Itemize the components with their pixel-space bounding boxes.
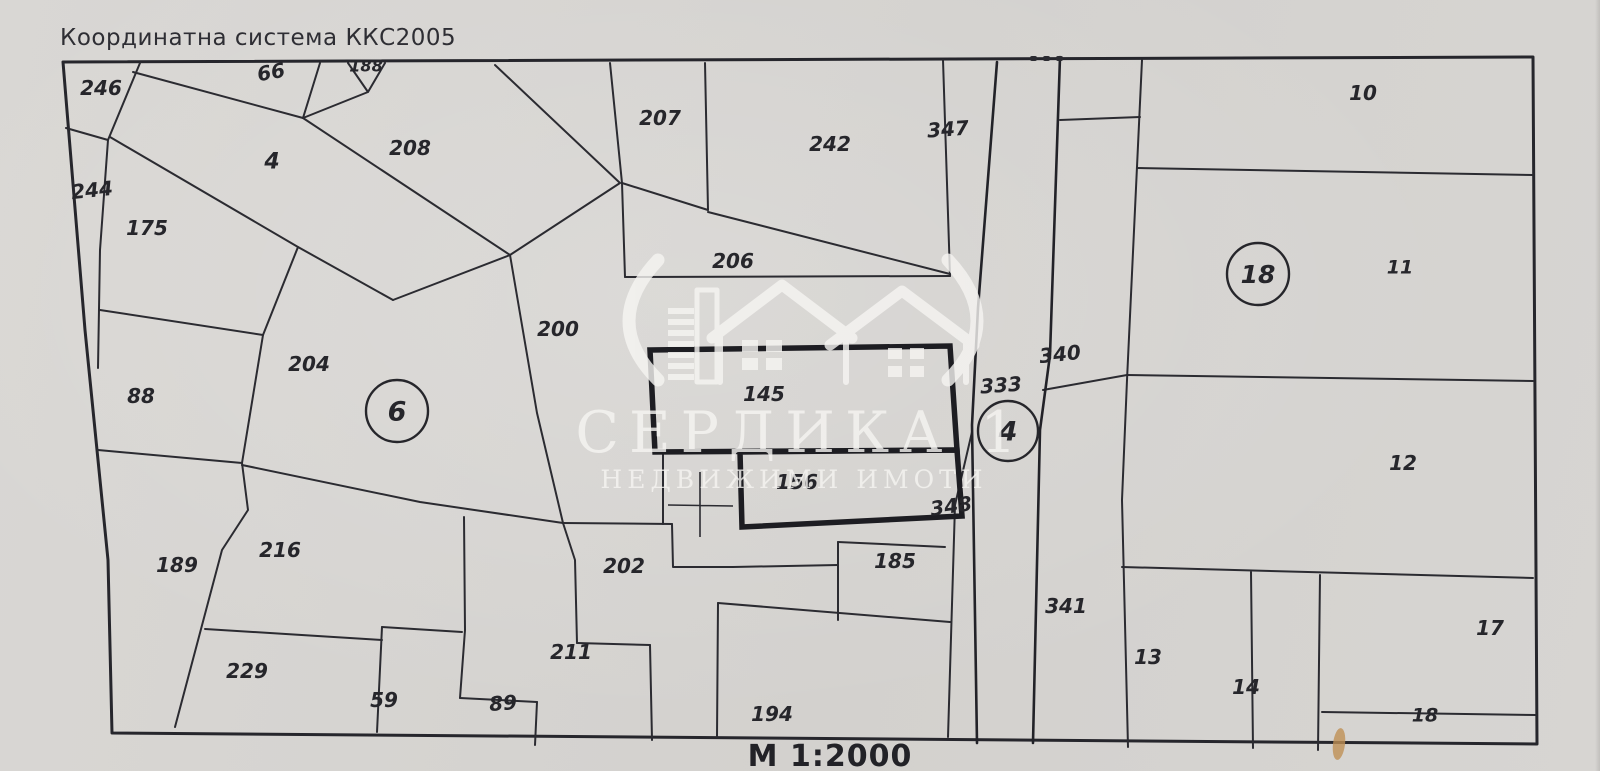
parcel-label-202: 202 bbox=[603, 554, 645, 578]
scanned-cadastral-page: Координатна система ККС2005 bbox=[0, 0, 1600, 771]
parcel-label-189: 189 bbox=[156, 553, 198, 577]
parcel-label-88: 88 bbox=[127, 384, 155, 408]
parcel-labels-layer: 2466618842082072423472441752062002048814… bbox=[70, 57, 1504, 727]
parcel-label-204: 204 bbox=[288, 352, 330, 376]
parcel-label-206: 206 bbox=[712, 249, 754, 273]
parcel-label-59: 59 bbox=[370, 688, 398, 712]
paper-stain bbox=[1331, 727, 1347, 760]
parcel-label-200: 200 bbox=[537, 317, 579, 341]
parcel-label-341: 341 bbox=[1045, 594, 1087, 618]
clipped-top-digits bbox=[1030, 56, 1063, 61]
parcel-label-244: 244 bbox=[70, 176, 114, 204]
watermark-logo bbox=[629, 260, 977, 382]
parcel-label-194: 194 bbox=[751, 702, 793, 726]
parcel-label-89: 89 bbox=[488, 690, 518, 716]
parcel-label-246: 246 bbox=[80, 76, 122, 100]
circled-parcel-18: 18 bbox=[1227, 243, 1289, 305]
parcel-label-188: 188 bbox=[349, 57, 382, 76]
parcel-label-340: 340 bbox=[1038, 340, 1082, 368]
parcel-label-10: 10 bbox=[1349, 81, 1377, 105]
watermark-house-left bbox=[712, 285, 852, 382]
parcel-label-208: 208 bbox=[389, 136, 431, 160]
parcel-label-207: 207 bbox=[639, 106, 681, 130]
parcel-label-175: 175 bbox=[126, 216, 168, 240]
circled-parcel-6: 6 bbox=[366, 380, 428, 442]
circled-parcel-number: 18 bbox=[1241, 260, 1276, 289]
parcel-label-348: 348 bbox=[929, 491, 974, 521]
parcel-label-216: 216 bbox=[259, 538, 301, 562]
parcel-label-11: 11 bbox=[1387, 257, 1413, 279]
parcel-label-4: 4 bbox=[263, 150, 279, 175]
watermark-striped-tower bbox=[668, 308, 694, 380]
watermark-tagline-text: НЕДВИЖИМИ ИМОТИ bbox=[600, 465, 987, 494]
cadastral-map: 2466618842082072423472441752062002048814… bbox=[0, 0, 1600, 771]
parcel-label-347: 347 bbox=[926, 116, 969, 143]
circled-parcel-number: 6 bbox=[388, 397, 407, 428]
parcel-label-14: 14 bbox=[1232, 675, 1260, 699]
parcel-label-185: 185 bbox=[874, 549, 916, 573]
parcel-label-13: 13 bbox=[1134, 645, 1162, 669]
watermark-brand-text: СЕРДИКА 1 bbox=[575, 400, 1026, 466]
scan-artifacts bbox=[1030, 56, 1347, 761]
parcel-label-242: 242 bbox=[809, 132, 851, 156]
parcel-label-333: 333 bbox=[979, 372, 1022, 399]
parcel-label-229: 229 bbox=[226, 659, 268, 683]
parcel-label-12: 12 bbox=[1389, 451, 1417, 475]
map-scale-label: М 1:2000 bbox=[700, 739, 960, 771]
parcel-label-17: 17 bbox=[1476, 616, 1504, 640]
watermark-left-paren bbox=[629, 260, 658, 380]
parcel-label-18: 18 bbox=[1412, 705, 1438, 727]
parcel-label-211: 211 bbox=[550, 640, 592, 664]
parcel-label-66: 66 bbox=[255, 58, 287, 86]
watermark: СЕРДИКА 1 НЕДВИЖИМИ ИМОТИ bbox=[575, 260, 1026, 494]
